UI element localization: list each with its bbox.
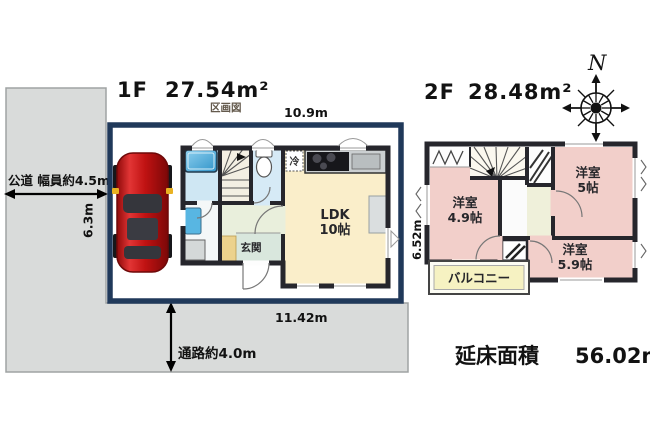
- fridge-label: 冷: [290, 155, 300, 168]
- entrance-label: 玄関: [241, 241, 262, 254]
- floor2-area: 28.48m²: [468, 80, 573, 104]
- balcony: バルコニー: [429, 261, 529, 294]
- room-59-size: 5.9帖: [558, 257, 593, 272]
- toilet: [256, 150, 272, 177]
- car-mirror-left: [112, 188, 119, 194]
- car-rear-window: [124, 246, 161, 259]
- kitchen: [305, 150, 386, 173]
- room-5-name: 洋室: [575, 165, 601, 180]
- hallway-2f-floor: [527, 178, 553, 240]
- plan-subtitle: 区画図: [210, 102, 242, 114]
- car-roof-glass: [127, 218, 158, 240]
- entrance-step: [221, 236, 236, 263]
- washbasin: [185, 208, 201, 234]
- total-area-value: 56.02m²: [575, 344, 650, 368]
- dim-11-42m: 11.42m: [275, 310, 328, 325]
- floor1-area: 27.54m²: [165, 78, 270, 102]
- car: [112, 153, 173, 272]
- room-ldk-name: LDK: [320, 208, 350, 223]
- floor1-label: 1F: [117, 78, 148, 102]
- total-area-label: 延床面積: [454, 344, 540, 368]
- room-5-size: 5帖: [577, 180, 599, 195]
- car-mirror-right: [166, 188, 173, 194]
- window-chevrons-left: [416, 187, 421, 218]
- site-plan-page: 公道 幅員約4.5m 6.3m 通路約4.0m 11.42m 1F 27.54m…: [0, 0, 650, 443]
- kitchen-sink: [352, 154, 380, 169]
- bathtub: [185, 150, 217, 172]
- washing-machine: [185, 240, 205, 260]
- dim-6-52m: 6.52m: [410, 220, 424, 260]
- window-chevrons-right: [641, 160, 646, 258]
- storage-counter: [369, 196, 388, 233]
- dim-10-9m: 10.9m: [284, 105, 328, 120]
- room-ldk-size: 10帖: [319, 222, 350, 238]
- car-windshield: [123, 194, 162, 213]
- floorplan-drawing: 公道 幅員約4.5m 6.3m 通路約4.0m 11.42m 1F 27.54m…: [0, 0, 650, 443]
- compass-n-label: N: [587, 51, 607, 75]
- compass-center: [591, 103, 602, 114]
- house-2f: バルコニー 洋室 4.9帖 洋室 5帖 洋室 5.9帖 6.52m: [410, 142, 646, 295]
- refrigerator: 冷: [286, 151, 303, 171]
- understair-storage: [502, 240, 527, 262]
- road-label: 公道 幅員約4.5m: [8, 173, 110, 188]
- passage-label: 通路約4.0m: [178, 345, 256, 362]
- balcony-label: バルコニー: [448, 271, 510, 286]
- room-59-name: 洋室: [562, 242, 588, 257]
- dim-6-3m: 6.3m: [81, 203, 96, 238]
- floor2-label: 2F: [424, 80, 455, 104]
- room-49-size: 4.9帖: [448, 210, 483, 225]
- room-49-name: 洋室: [452, 195, 478, 210]
